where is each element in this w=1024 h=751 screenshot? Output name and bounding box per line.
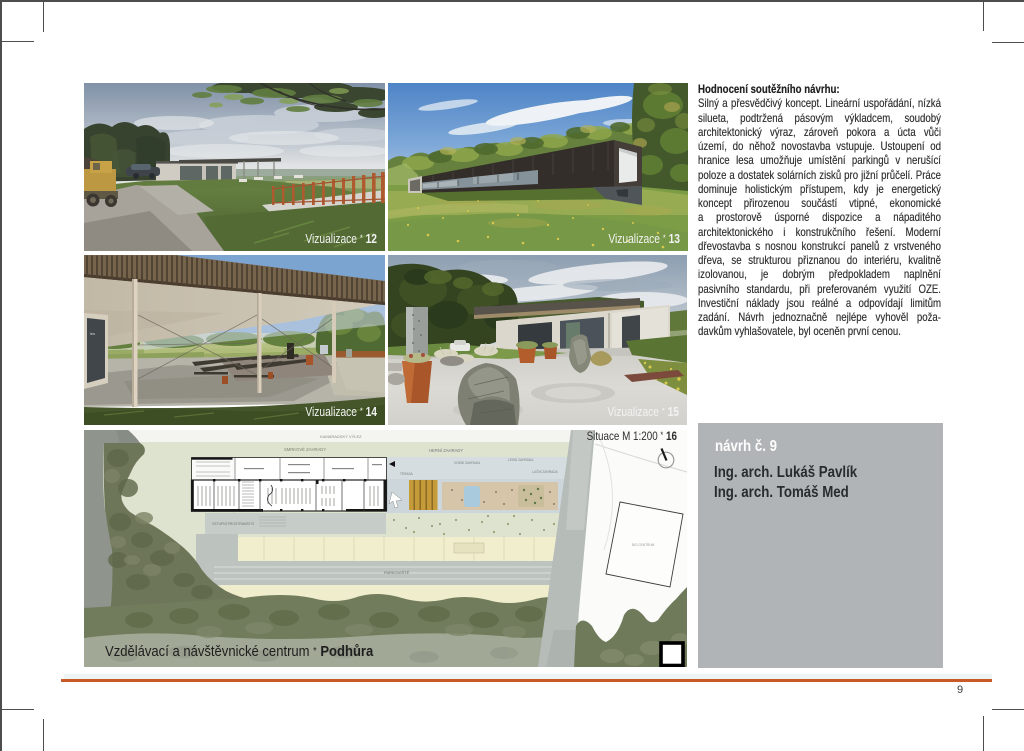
svg-text:KAMARADSKÝ VÝLEZ: KAMARADSKÝ VÝLEZ [320, 434, 362, 439]
svg-text:VSTUPNÍ PROSTRANSTVÍ: VSTUPNÍ PROSTRANSTVÍ [212, 522, 254, 526]
svg-text:PARKOVIŠTĚ: PARKOVIŠTĚ [384, 570, 410, 575]
svg-text:les: les [90, 331, 95, 336]
svg-text:SMRKOVÉ ZAHRADY: SMRKOVÉ ZAHRADY [284, 447, 326, 452]
svg-text:BIO CENTRUM: BIO CENTRUM [632, 543, 655, 547]
svg-text:TERASA: TERASA [400, 472, 414, 476]
svg-text:LESNÍ ZAHRADA: LESNÍ ZAHRADA [508, 458, 534, 462]
svg-text:HERNÍ ZAHRADY: HERNÍ ZAHRADY [429, 448, 463, 453]
svg-text:VODNÍ ZAHRADA: VODNÍ ZAHRADA [454, 461, 481, 465]
svg-text:LUČNÍ ZAHRADA: LUČNÍ ZAHRADA [532, 469, 559, 474]
